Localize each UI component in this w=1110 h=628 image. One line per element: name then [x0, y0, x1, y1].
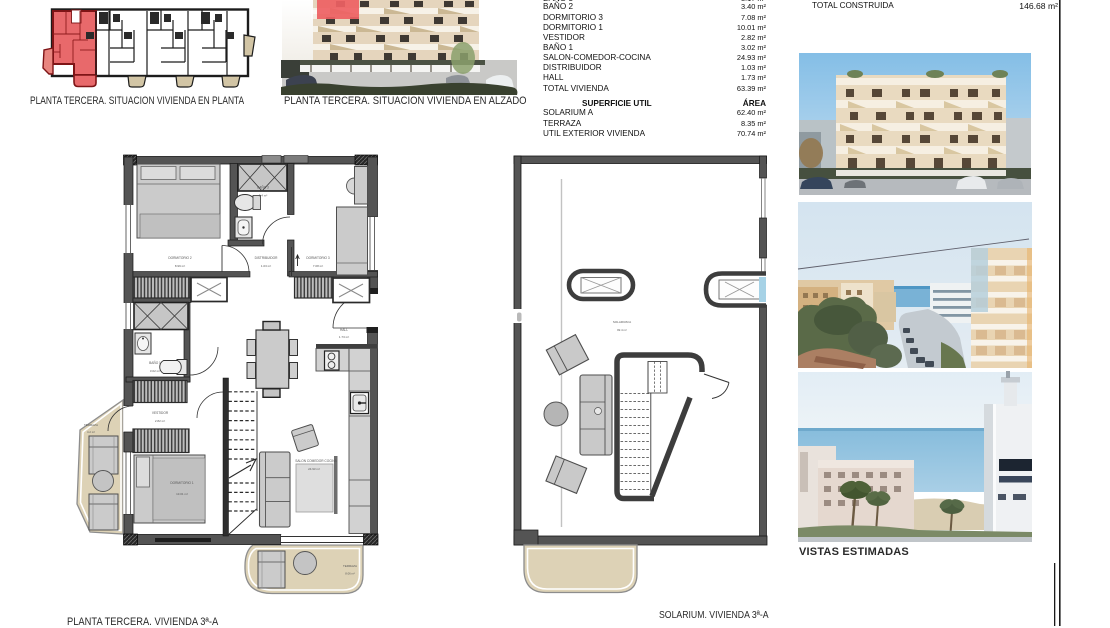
svg-text:DISTRIBUIDOR: DISTRIBUIDOR [255, 256, 279, 260]
svg-text:3.4 m²: 3.4 m² [259, 194, 268, 198]
svg-text:8.99 m²: 8.99 m² [175, 264, 185, 268]
svg-text:SOLARIUM A: SOLARIUM A [613, 320, 631, 324]
svg-text:TERRAZA: TERRAZA [84, 423, 98, 427]
svg-text:8.06 m²: 8.06 m² [345, 572, 355, 576]
svg-text:TERRAZA: TERRAZA [343, 564, 357, 568]
svg-text:1.73 m²: 1.73 m² [339, 335, 349, 339]
svg-text:7.08 m²: 7.08 m² [313, 264, 323, 268]
svg-text:2.82 m²: 2.82 m² [155, 419, 165, 423]
svg-text:13.01 m²: 13.01 m² [176, 492, 188, 496]
svg-text:BAÑO 1: BAÑO 1 [149, 360, 161, 365]
svg-text:82.4 m²: 82.4 m² [617, 328, 627, 332]
svg-text:SALON COMEDOR COCINA: SALON COMEDOR COCINA [295, 459, 337, 463]
svg-text:1.03 m²: 1.03 m² [261, 264, 271, 268]
svg-text:DORMITORIO 2: DORMITORIO 2 [168, 256, 192, 260]
svg-text:3.02 m²: 3.02 m² [150, 369, 160, 373]
svg-text:HALL: HALL [340, 328, 348, 332]
svg-text:VESTIDOR: VESTIDOR [152, 411, 169, 415]
svg-text:4.2 m²: 4.2 m² [87, 430, 95, 434]
svg-text:24.93 m²: 24.93 m² [308, 467, 320, 471]
svg-text:DORMITORIO 1: DORMITORIO 1 [170, 481, 194, 485]
svg-text:BAÑO 3: BAÑO 3 [257, 185, 269, 190]
svg-text:DORMITORIO 3: DORMITORIO 3 [306, 256, 330, 260]
